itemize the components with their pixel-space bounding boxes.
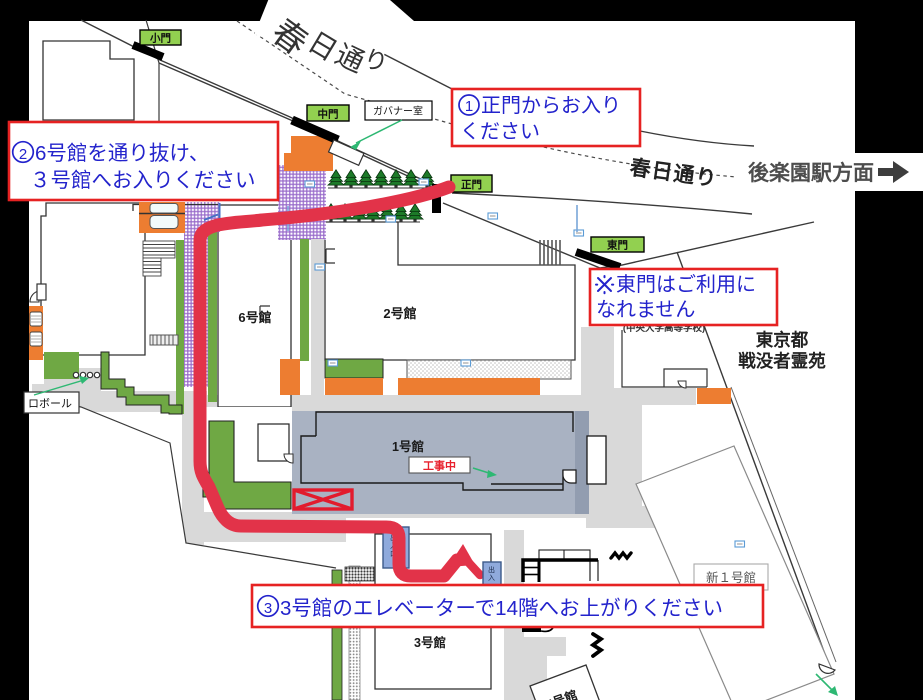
svg-text:ガバナー室: ガバナー室 (373, 105, 423, 118)
svg-text:新１号館: 新１号館 (706, 570, 756, 585)
svg-text:工事中: 工事中 (423, 459, 456, 473)
svg-text:後楽園駅方面: 後楽園駅方面 (748, 161, 874, 185)
svg-text:東門はご利用に: 東門はご利用に (616, 273, 756, 296)
svg-text:東門: 東門 (607, 239, 628, 252)
svg-text:3: 3 (264, 600, 272, 617)
svg-text:３号館へお入りください: ３号館へお入りください (30, 169, 256, 192)
svg-text:正門からお入り: 正門からお入り (481, 95, 621, 117)
svg-text:正門: 正門 (461, 179, 482, 191)
svg-text:1号館: 1号館 (392, 439, 424, 454)
svg-text:3号館のエレベーターで14階へお上がりください: 3号館のエレベーターで14階へお上がりください (280, 597, 723, 620)
svg-text:出: 出 (488, 565, 495, 574)
svg-text:1: 1 (465, 98, 473, 115)
svg-text:2: 2 (19, 146, 27, 163)
svg-text:ロボール: ロボール (28, 397, 72, 410)
svg-text:6号館を通り抜け、: 6号館を通り抜け、 (35, 142, 209, 165)
svg-text:中門: 中門 (318, 108, 339, 121)
svg-text:ください: ください (460, 121, 540, 143)
svg-text:6号館: 6号館 (238, 310, 271, 325)
svg-text:入: 入 (488, 574, 495, 582)
svg-text:3号館: 3号館 (414, 635, 446, 650)
svg-text:なれません: なれません (596, 299, 695, 321)
svg-text:戦没者霊苑: 戦没者霊苑 (738, 351, 826, 371)
svg-text:小門: 小門 (149, 32, 171, 45)
svg-text:2号館: 2号館 (383, 306, 416, 321)
svg-text:東京都: 東京都 (756, 330, 809, 350)
